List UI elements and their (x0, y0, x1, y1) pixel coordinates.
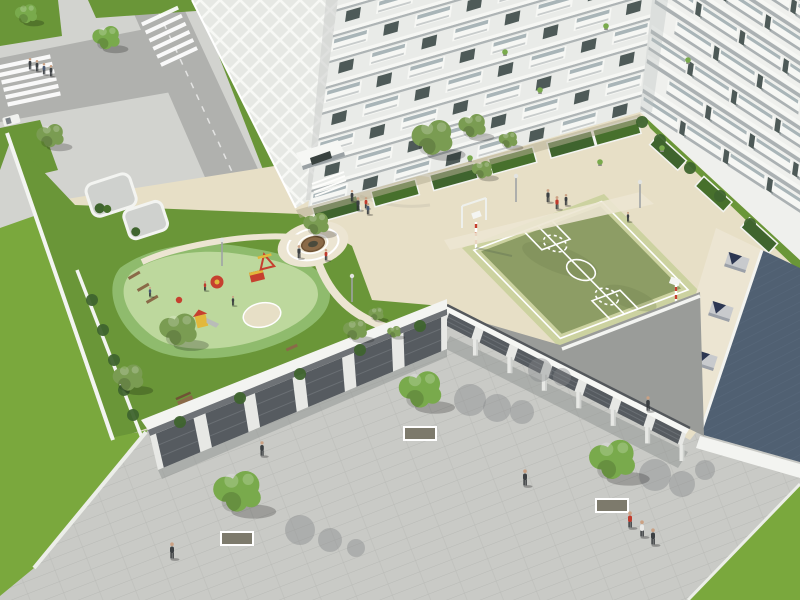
light-pole-head (220, 238, 224, 242)
hedge-blob (414, 320, 426, 332)
hedge-blob (684, 162, 696, 174)
hedge-blob (127, 409, 139, 421)
tree-planter (221, 532, 253, 545)
rendered-scene (0, 0, 800, 600)
balcony-plant (659, 145, 665, 151)
balcony-plant (597, 159, 603, 165)
light-pole-head (350, 274, 354, 278)
balcony-plant (603, 23, 609, 29)
balcony-plant (502, 49, 508, 55)
render-shape (475, 224, 477, 228)
balcony-plant (467, 155, 473, 161)
cast-shadow (347, 539, 365, 557)
hedge-blob (354, 344, 366, 356)
cast-shadow (510, 400, 534, 424)
column-shade (580, 392, 582, 408)
hedge-blob (744, 218, 756, 230)
hedge-blob (97, 324, 109, 336)
cast-shadow (318, 528, 342, 552)
cast-shadow (669, 471, 695, 497)
hedge-blob (174, 416, 186, 428)
cast-shadow (528, 358, 552, 382)
cast-shadow (553, 368, 571, 386)
column-shade (614, 410, 616, 426)
tree-planter (596, 499, 628, 512)
column-shade (511, 357, 513, 373)
hedge-blob (636, 116, 648, 128)
render-stage (0, 0, 800, 600)
hedge-blob (294, 368, 306, 380)
tree-planter (404, 427, 436, 440)
light-pole-head (514, 174, 518, 178)
render-shape (675, 295, 677, 299)
cast-shadow (285, 515, 315, 545)
column-shade (476, 340, 478, 356)
hedge-blob (654, 134, 666, 146)
render-shape (176, 297, 182, 303)
cast-shadow (695, 460, 715, 480)
hedge-blob (108, 354, 120, 366)
column-shade (683, 445, 685, 461)
column-shade (648, 427, 650, 443)
cast-shadow (454, 384, 486, 416)
light-pole-head (638, 180, 642, 184)
hedge-blob (234, 392, 246, 404)
cast-shadow (483, 394, 511, 422)
balcony-plant (537, 87, 543, 93)
balcony-plant (685, 57, 691, 63)
render-shape (215, 280, 220, 285)
hedge-blob (714, 190, 726, 202)
render-shape (675, 287, 677, 291)
hedge-blob (86, 294, 98, 306)
